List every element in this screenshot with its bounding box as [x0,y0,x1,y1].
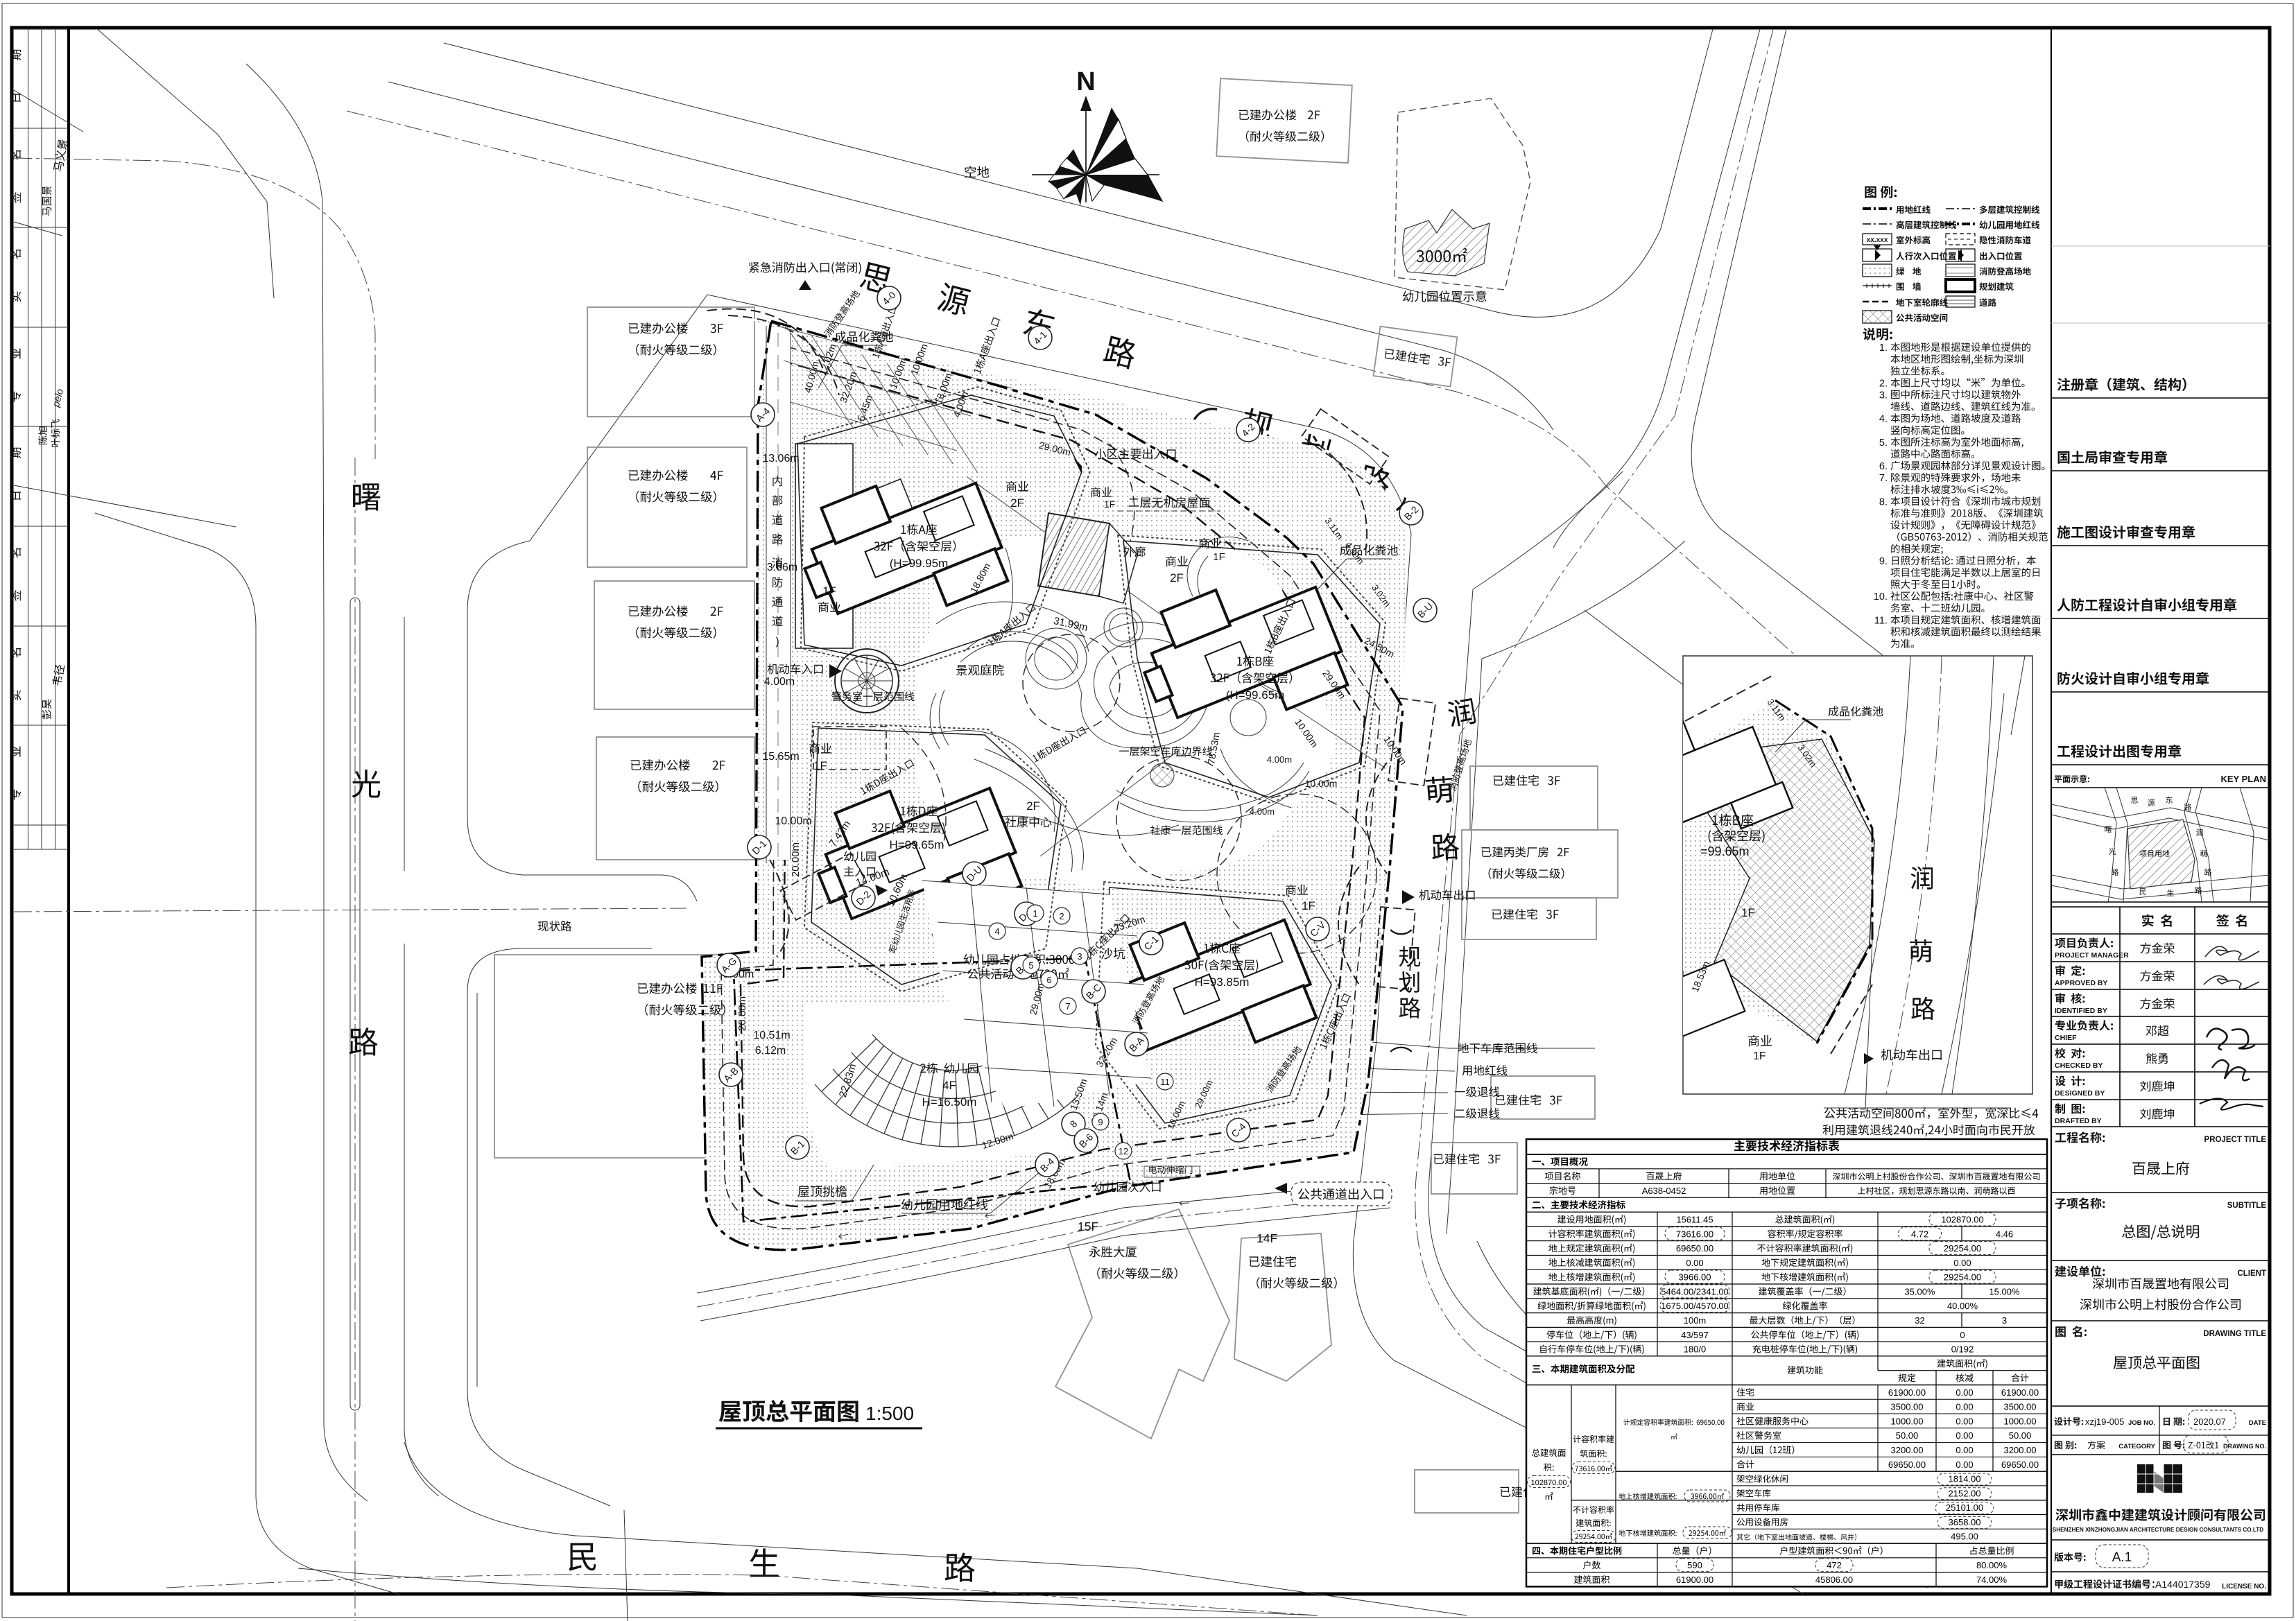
svg-text:15.65m: 15.65m [762,751,799,763]
svg-text:73616.00: 73616.00 [1676,1229,1714,1239]
svg-text:4.00m: 4.00m [764,676,795,688]
svg-text:3966.00: 3966.00 [1679,1272,1711,1283]
svg-text:29254.00: 29254.00 [1944,1243,1981,1254]
svg-text:69650.00: 69650.00 [1676,1243,1714,1254]
svg-text:1.: 1. [1879,343,1888,354]
svg-text:61900.00: 61900.00 [2001,1387,2039,1398]
svg-text:3500.00: 3500.00 [2004,1402,2037,1412]
svg-text:0.00: 0.00 [1956,1402,1973,1412]
svg-text:4.72: 4.72 [1911,1229,1928,1239]
svg-text:15611.45: 15611.45 [1676,1215,1713,1225]
svg-text:5: 5 [1028,960,1033,971]
svg-text:xzj19-005: xzj19-005 [2085,1416,2124,1427]
svg-text:61900.00: 61900.00 [1888,1387,1926,1398]
svg-text:10.51m: 10.51m [753,1030,790,1041]
svg-text:2: 2 [1059,911,1064,921]
svg-text:=99.65m: =99.65m [1700,844,1750,858]
svg-text:0.00: 0.00 [1956,1387,1973,1398]
svg-text:7.: 7. [1879,473,1888,484]
svg-text:A144017359: A144017359 [2155,1579,2211,1590]
svg-text:45806.00: 45806.00 [1815,1575,1853,1585]
svg-text:CLIENT: CLIENT [2237,1269,2266,1278]
svg-text:H=16.50m: H=16.50m [922,1095,977,1109]
svg-text:2F: 2F [1170,571,1184,584]
svg-text:69650.00: 69650.00 [2001,1459,2039,1470]
svg-text:3.: 3. [1879,390,1888,401]
svg-text:xx.xxx: xx.xxx [1867,236,1888,244]
svg-text:(H=99.95m: (H=99.95m [890,557,949,570]
svg-text:74.00%: 74.00% [1976,1575,2008,1585]
svg-text:4.: 4. [1879,414,1888,425]
svg-text:1:500: 1:500 [865,1403,914,1424]
svg-text:KEY PLAN: KEY PLAN [2221,774,2267,784]
svg-text:43/597: 43/597 [1681,1330,1709,1340]
svg-text:6: 6 [1046,975,1051,985]
svg-text:3200.00: 3200.00 [1891,1445,1924,1455]
svg-text:0.00: 0.00 [1956,1445,1973,1455]
svg-text:IDENTIFIED BY: IDENTIFIED BY [2055,1007,2107,1015]
svg-text:1000.00: 1000.00 [1891,1416,1924,1426]
svg-text:SUBTITLE: SUBTITLE [2227,1202,2267,1210]
svg-text:6.12m: 6.12m [755,1045,786,1057]
svg-text:15.00%: 15.00% [1989,1286,2020,1297]
svg-text:LICENSE NO.: LICENSE NO. [2222,1583,2266,1590]
svg-text:APPROVED BY: APPROVED BY [2055,979,2107,987]
svg-text:0.00: 0.00 [1956,1459,1973,1470]
svg-text:10.00m: 10.00m [775,815,811,827]
svg-text:1F: 1F [1104,499,1115,510]
svg-text:4.00m: 4.00m [1250,806,1275,817]
svg-text:61900.00: 61900.00 [1676,1575,1714,1585]
svg-text:2F: 2F [1010,496,1024,510]
svg-text:0.00: 0.00 [1953,1258,1971,1268]
svg-text:100m: 100m [1684,1315,1707,1326]
svg-text:4.46: 4.46 [1996,1229,2013,1239]
svg-text:0.00: 0.00 [1956,1430,1973,1441]
svg-text:50.00: 50.00 [1896,1430,1919,1441]
svg-text:1F: 1F [813,759,827,772]
svg-text:0.00: 0.00 [1956,1416,1973,1426]
svg-text:DRAWING NO.: DRAWING NO. [2223,1443,2266,1450]
svg-text:N: N [1076,67,1095,96]
svg-text:590: 590 [1687,1560,1702,1570]
svg-text:2152.00: 2152.00 [1949,1488,1981,1498]
svg-text:1F: 1F [1213,551,1225,563]
svg-text:32: 32 [1915,1315,1924,1326]
svg-text:0: 0 [1960,1330,1965,1340]
svg-text:JOB NO.: JOB NO. [2128,1419,2155,1427]
svg-text:1F: 1F [822,584,836,598]
svg-text:4: 4 [994,926,999,937]
svg-text:20.00m: 20.00m [790,842,802,877]
svg-text:DESIGNED BY: DESIGNED BY [2055,1089,2105,1098]
svg-text:6.: 6. [1879,461,1888,472]
svg-text:): ) [775,636,779,648]
svg-text:1F: 1F [1753,1050,1766,1062]
svg-text:A.1: A.1 [2112,1550,2132,1565]
svg-text:4F: 4F [942,1079,956,1092]
svg-text:5464.00/2341.00: 5464.00/2341.00 [1661,1286,1729,1297]
svg-text:CATEGORY: CATEGORY [2118,1443,2155,1450]
svg-text:25101.00: 25101.00 [1946,1502,1983,1513]
svg-text:3658.00: 3658.00 [1949,1517,1981,1527]
svg-text:1814.00: 1814.00 [1949,1474,1981,1484]
svg-text:H=93.85m: H=93.85m [1195,976,1250,989]
svg-text:10.: 10. [1874,591,1888,603]
svg-text:180/0: 180/0 [1684,1344,1707,1355]
svg-text:8.: 8. [1879,496,1888,508]
svg-text:10.00m: 10.00m [1305,778,1338,789]
svg-text:2020.07: 2020.07 [2193,1416,2226,1427]
svg-text:2F: 2F [1026,799,1040,813]
svg-text:1: 1 [1033,908,1037,919]
svg-text:29254.00: 29254.00 [1944,1272,1981,1283]
svg-text:15F: 15F [1078,1220,1098,1233]
svg-text:11: 11 [1160,1077,1170,1087]
svg-text:495.00: 495.00 [1951,1532,1978,1542]
svg-text:2.: 2. [1879,378,1888,389]
svg-text:SHENZHEN XINZHONGJIAN ARCHITEC: SHENZHEN XINZHONGJIAN ARCHITECTURE DESIG… [2053,1527,2264,1533]
svg-text:50.00: 50.00 [2009,1430,2032,1441]
svg-text:CHECKED BY: CHECKED BY [2055,1061,2103,1070]
svg-text:102870.00: 102870.00 [1531,1479,1567,1487]
svg-text:7: 7 [1065,1001,1070,1012]
svg-text:pelo: pelo [50,388,66,409]
svg-text:69650.00: 69650.00 [1888,1459,1926,1470]
svg-text:9.: 9. [1879,556,1888,567]
svg-text:PROJECT TITLE: PROJECT TITLE [2204,1136,2267,1144]
svg-text:1000.00: 1000.00 [2004,1416,2037,1426]
svg-text:1F: 1F [1302,899,1315,912]
svg-text:4.00m: 4.00m [1267,754,1292,765]
svg-text:DRAWING TITLE: DRAWING TITLE [2203,1330,2266,1338]
svg-text:H=99.65m: H=99.65m [890,838,944,851]
svg-text:3: 3 [1077,951,1082,962]
svg-text:472: 472 [1827,1560,1842,1570]
svg-text:3200.00: 3200.00 [2004,1445,2037,1455]
svg-text:20.00m: 20.00m [736,996,748,1031]
svg-text:(H=99.65m: (H=99.65m [1226,688,1285,702]
svg-text:14F: 14F [1257,1231,1277,1245]
svg-text:0/192: 0/192 [1951,1344,1974,1355]
svg-text:40.00%: 40.00% [1947,1301,1978,1311]
svg-text:102870.00: 102870.00 [1941,1215,1983,1225]
svg-text:DRAFTED BY: DRAFTED BY [2055,1117,2102,1125]
svg-text:12: 12 [1119,1146,1128,1156]
svg-text:PROJECT MANAGER: PROJECT MANAGER [2055,951,2129,960]
svg-text:5.: 5. [1879,437,1888,449]
svg-text:3500.00: 3500.00 [1891,1402,1924,1412]
svg-text:DATE: DATE [2249,1419,2266,1427]
svg-text:0.00: 0.00 [1686,1258,1703,1268]
svg-text:CHIEF: CHIEF [2055,1034,2077,1042]
svg-text:11.: 11. [1874,615,1888,626]
svg-text:1675.00/4570.00: 1675.00/4570.00 [1661,1301,1729,1311]
svg-text:A638-0452: A638-0452 [1642,1186,1686,1196]
svg-text:80.00%: 80.00% [1976,1560,2008,1570]
svg-text:9: 9 [1098,1117,1103,1127]
svg-text:35.00%: 35.00% [1904,1286,1935,1297]
svg-text:3.86m: 3.86m [767,562,797,573]
svg-text:3: 3 [2002,1315,2007,1326]
svg-text:13.06m: 13.06m [762,453,799,465]
svg-text:1F: 1F [1741,906,1755,919]
